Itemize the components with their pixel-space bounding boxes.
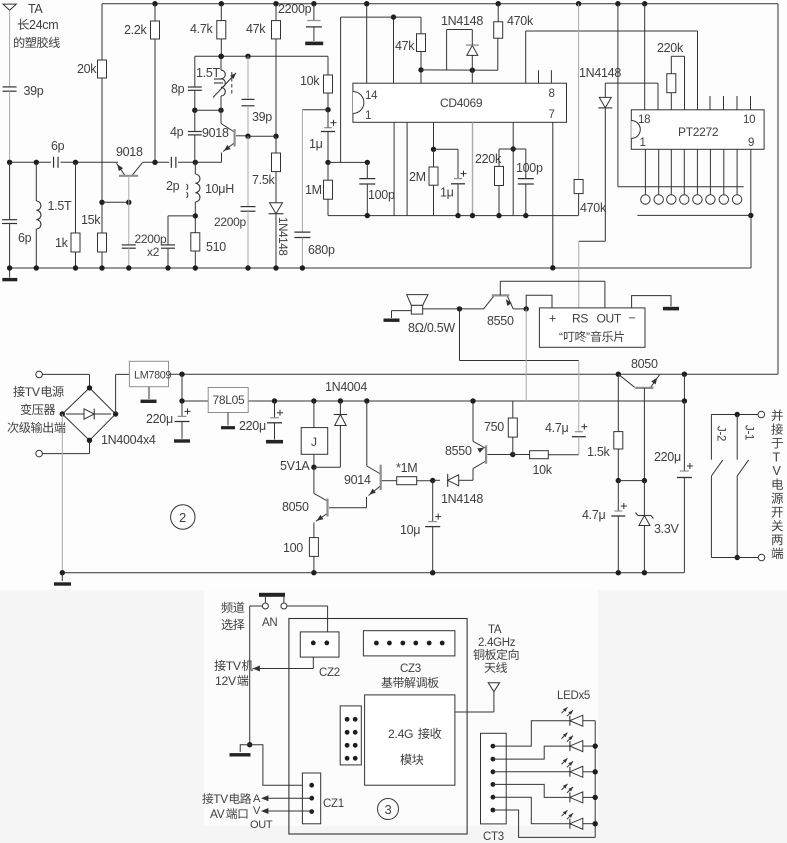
- svg-text:1: 1: [365, 110, 371, 122]
- svg-text:*1M: *1M: [396, 461, 417, 475]
- svg-text:47k: 47k: [246, 22, 266, 36]
- svg-text:CZ2: CZ2: [319, 667, 340, 679]
- svg-text:CD4069: CD4069: [440, 96, 483, 110]
- svg-text:1.5k: 1.5k: [587, 445, 610, 459]
- svg-text:OUT: OUT: [250, 819, 273, 831]
- svg-text:2.4GHz: 2.4GHz: [478, 637, 516, 649]
- svg-text:3.3V: 3.3V: [654, 522, 679, 536]
- svg-text:10: 10: [743, 114, 755, 126]
- svg-text:8050: 8050: [282, 500, 309, 514]
- svg-text:TA: TA: [28, 2, 43, 16]
- svg-text:100p: 100p: [516, 161, 543, 175]
- svg-text:1N4148: 1N4148: [579, 66, 621, 80]
- svg-text:1.5T: 1.5T: [48, 199, 72, 213]
- svg-text:TA: TA: [488, 624, 502, 636]
- svg-text:10μH: 10μH: [205, 182, 234, 196]
- svg-text:2.4G: 2.4G: [388, 727, 413, 741]
- svg-text:J: J: [311, 435, 317, 449]
- svg-text:1: 1: [640, 137, 646, 149]
- svg-text:8550: 8550: [487, 314, 514, 328]
- svg-text:J-1: J-1: [743, 425, 755, 440]
- svg-text:TV: TV: [213, 792, 228, 806]
- svg-text:14: 14: [365, 90, 378, 102]
- svg-text:7: 7: [549, 109, 555, 121]
- svg-text:8050: 8050: [631, 357, 658, 371]
- svg-text:1N4148: 1N4148: [441, 492, 483, 506]
- svg-text:220μ: 220μ: [146, 412, 173, 426]
- svg-text:J-2: J-2: [715, 426, 727, 441]
- svg-text:220k: 220k: [475, 152, 502, 166]
- svg-text:47k: 47k: [395, 39, 415, 53]
- svg-text:CZ3: CZ3: [400, 663, 421, 675]
- svg-text:9018: 9018: [116, 145, 143, 159]
- svg-text:OUT: OUT: [597, 312, 622, 326]
- svg-text:+: +: [549, 312, 556, 326]
- svg-text:9018: 9018: [202, 126, 229, 140]
- svg-text:3: 3: [385, 802, 392, 817]
- svg-text:10k: 10k: [300, 74, 320, 88]
- svg-text:1N4148: 1N4148: [441, 14, 483, 28]
- svg-text:T: T: [773, 450, 781, 464]
- svg-text:CT3: CT3: [483, 831, 504, 843]
- svg-text:9: 9: [748, 137, 754, 149]
- svg-text:“: “: [559, 330, 563, 344]
- svg-text:AN: AN: [262, 617, 277, 629]
- svg-text:39p: 39p: [24, 84, 44, 98]
- svg-text:39p: 39p: [252, 110, 272, 124]
- svg-text:470k: 470k: [507, 14, 534, 28]
- svg-text:RS: RS: [572, 312, 588, 326]
- svg-text:2200p: 2200p: [214, 215, 246, 229]
- svg-text:1μ: 1μ: [309, 137, 323, 151]
- svg-text:1.5T: 1.5T: [196, 66, 220, 80]
- svg-text:2p: 2p: [166, 179, 180, 193]
- svg-text:1N4004x4: 1N4004x4: [101, 433, 156, 447]
- svg-text:10k: 10k: [533, 463, 553, 477]
- svg-text:8: 8: [549, 88, 555, 100]
- svg-text:2.2k: 2.2k: [124, 23, 147, 37]
- svg-text:”: ”: [586, 330, 590, 344]
- svg-text:24cm: 24cm: [29, 18, 58, 32]
- svg-text:4.7μ: 4.7μ: [545, 421, 568, 435]
- svg-text:4p: 4p: [170, 125, 184, 139]
- svg-text:10μ: 10μ: [400, 523, 420, 537]
- svg-text:1M: 1M: [305, 183, 322, 197]
- svg-text:9014: 9014: [344, 473, 371, 487]
- svg-text:750: 750: [484, 420, 504, 434]
- svg-text:470k: 470k: [580, 201, 607, 215]
- svg-text:x2: x2: [147, 245, 160, 259]
- svg-text:1μ: 1μ: [440, 186, 454, 200]
- svg-text:510: 510: [206, 240, 226, 254]
- svg-text:18: 18: [638, 114, 650, 126]
- svg-text:TV: TV: [226, 659, 242, 673]
- svg-text:1N4004: 1N4004: [325, 380, 367, 394]
- svg-text:6p: 6p: [18, 231, 32, 245]
- svg-text:5V1A: 5V1A: [280, 459, 310, 473]
- svg-text:220μ: 220μ: [654, 450, 681, 464]
- svg-text:2: 2: [179, 510, 186, 525]
- svg-text:220μ: 220μ: [239, 419, 266, 433]
- svg-text:2200p: 2200p: [135, 232, 167, 246]
- svg-text:2200p: 2200p: [278, 2, 312, 16]
- svg-text:4.7μ: 4.7μ: [582, 508, 605, 522]
- svg-text:1k: 1k: [55, 236, 69, 250]
- svg-text:6p: 6p: [51, 139, 65, 153]
- svg-text:LEDx5: LEDx5: [557, 690, 590, 702]
- svg-text:A: A: [253, 793, 261, 805]
- svg-text:CZ1: CZ1: [323, 798, 344, 810]
- svg-text:LM7809: LM7809: [134, 370, 172, 382]
- svg-text:8Ω/0.5W: 8Ω/0.5W: [408, 321, 455, 335]
- svg-text:V: V: [253, 805, 261, 817]
- svg-text:15k: 15k: [81, 213, 101, 227]
- svg-text:7.5k: 7.5k: [252, 173, 275, 187]
- svg-text:AV: AV: [210, 807, 225, 821]
- svg-text:680p: 680p: [308, 243, 335, 257]
- svg-text:2M: 2M: [409, 170, 426, 184]
- svg-text:20k: 20k: [77, 62, 97, 76]
- svg-text:78L05: 78L05: [213, 393, 245, 407]
- svg-text:1N4148: 1N4148: [276, 217, 288, 255]
- svg-text:12V: 12V: [215, 674, 237, 688]
- svg-text:−: −: [629, 311, 636, 325]
- svg-text:TV: TV: [25, 385, 41, 399]
- svg-text:8550: 8550: [445, 444, 472, 458]
- svg-text:4.7k: 4.7k: [190, 22, 213, 36]
- svg-text:8p: 8p: [171, 82, 185, 96]
- svg-text:220k: 220k: [657, 41, 684, 55]
- svg-text:100: 100: [283, 541, 303, 555]
- svg-text:PT2272: PT2272: [678, 125, 719, 139]
- svg-text:100p: 100p: [368, 188, 395, 202]
- svg-text:V: V: [773, 464, 782, 478]
